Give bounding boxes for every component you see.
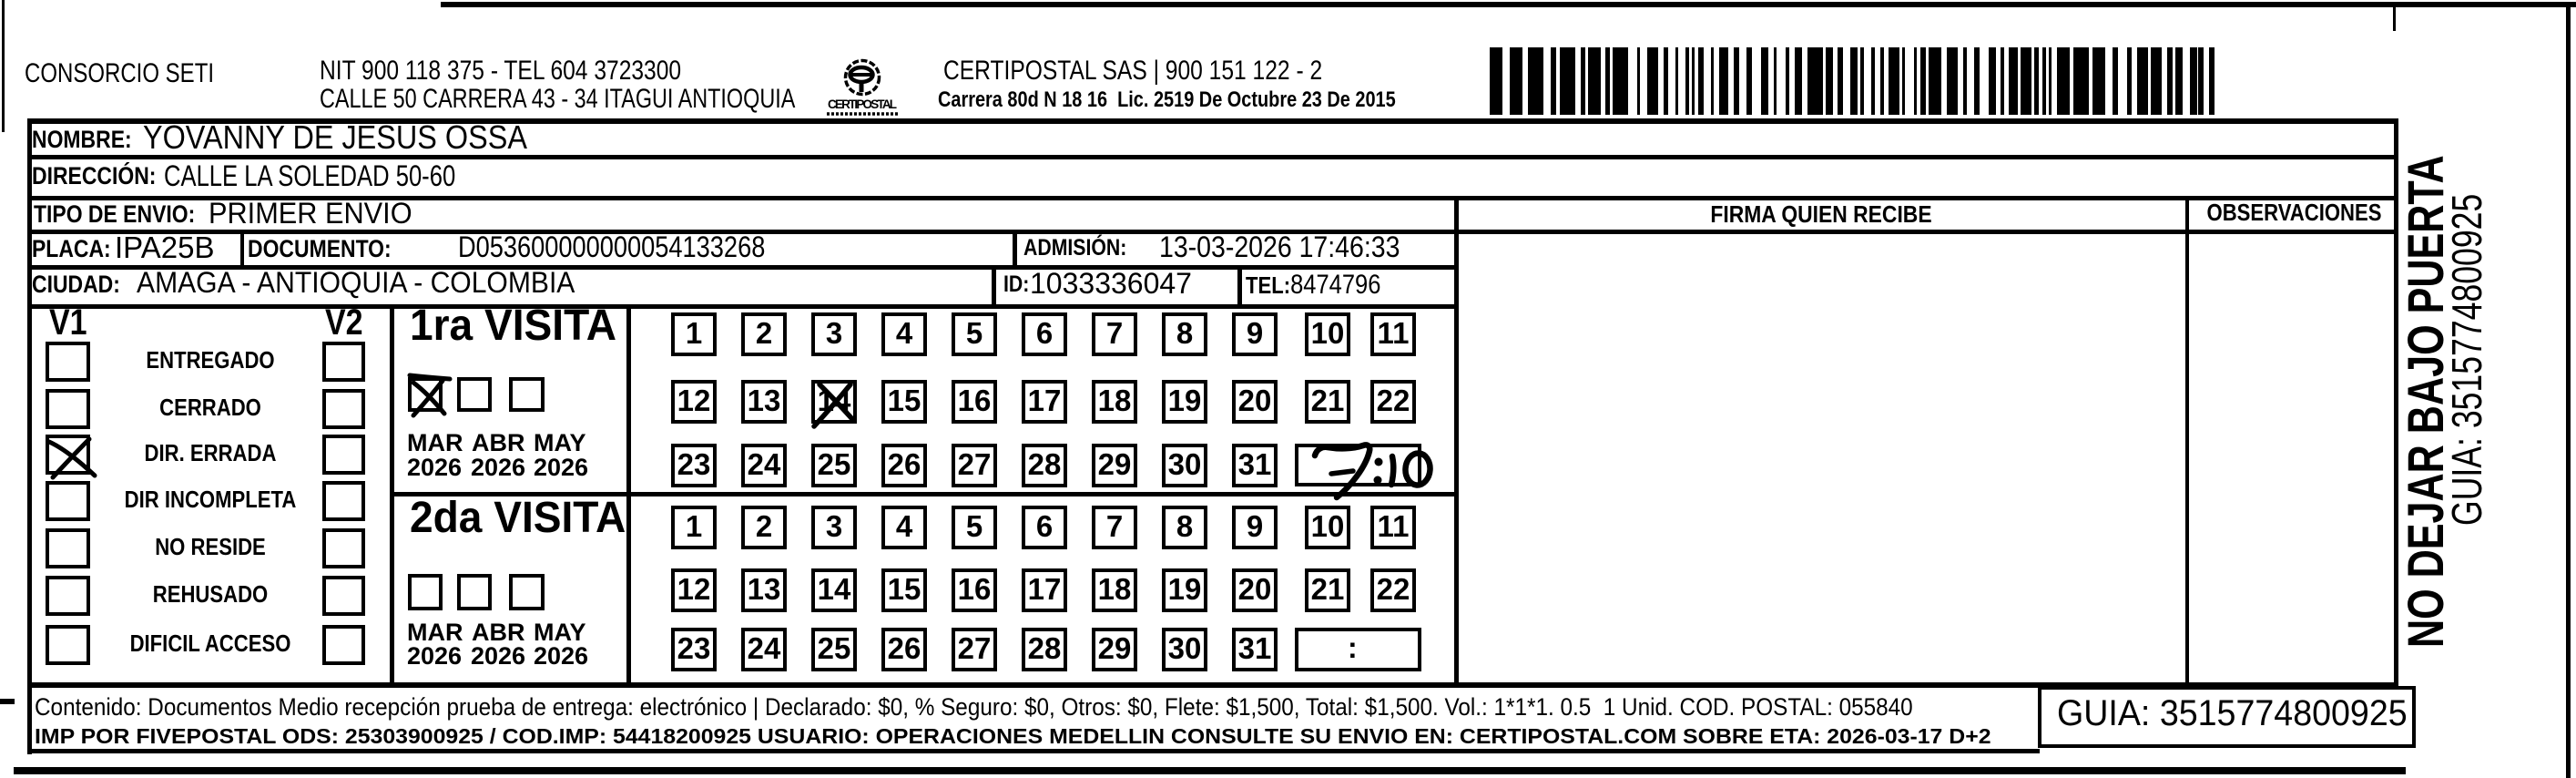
svg-text:CERTIPOSTAL: CERTIPOSTAL: [828, 97, 897, 111]
